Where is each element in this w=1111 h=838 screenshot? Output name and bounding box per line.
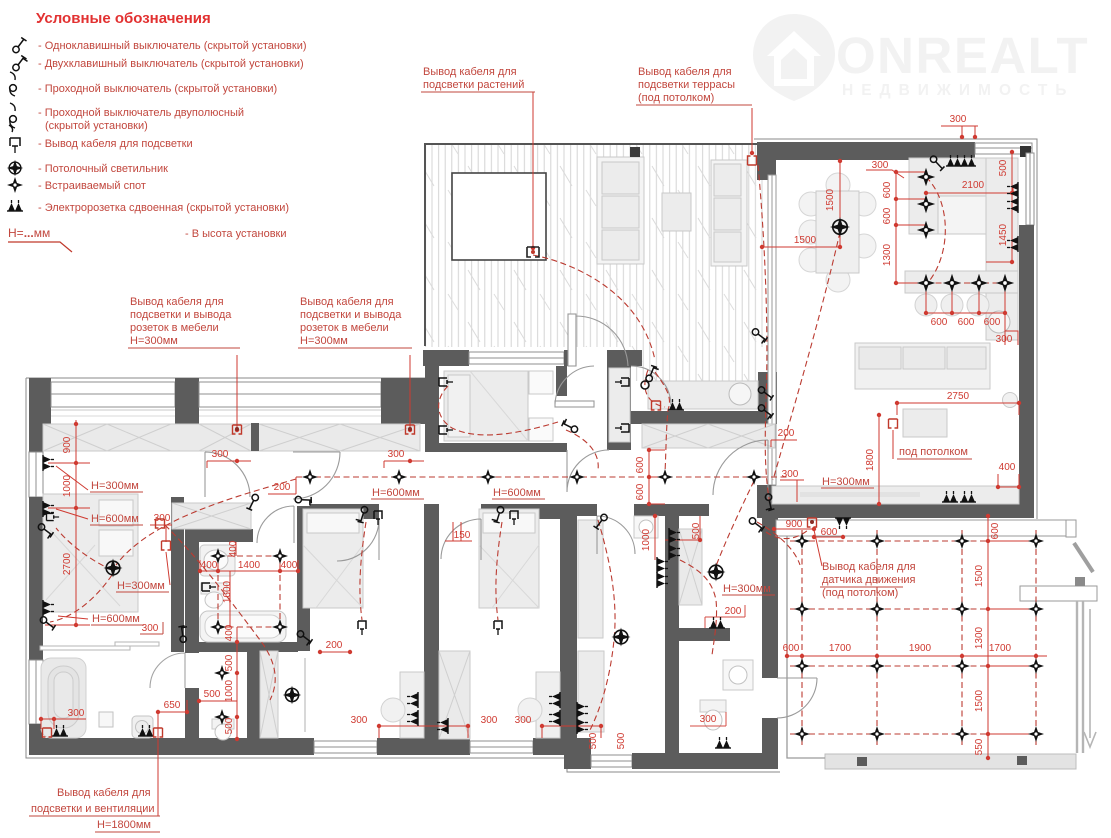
svg-text:(под потолком): (под потолком) [822,587,898,599]
svg-text:1500: 1500 [825,188,836,211]
svg-text:- Проходной выключатель двупол: - Проходной выключатель двуполюсный [38,107,244,119]
svg-text:под потолком: под потолком [899,446,968,458]
svg-text:1700: 1700 [829,643,852,654]
svg-text:300: 300 [700,714,717,725]
svg-text:300: 300 [68,708,85,719]
svg-text:200: 200 [274,482,291,493]
svg-text:900: 900 [786,519,803,530]
svg-text:400: 400 [999,462,1016,473]
svg-text:1500: 1500 [974,689,985,712]
svg-text:Вывод кабеля для: Вывод кабеля для [822,561,916,573]
svg-text:500: 500 [224,717,235,734]
svg-text:1400: 1400 [238,560,261,571]
svg-text:Условные обозначения: Условные обозначения [36,10,211,27]
svg-text:Н=600мм: Н=600мм [372,487,420,499]
svg-text:НЕДВИЖИМОСТЬ: НЕДВИЖИМОСТЬ [842,82,1074,99]
svg-text:200: 200 [778,428,795,439]
svg-text:Н=600мм: Н=600мм [91,513,139,525]
svg-text:2700: 2700 [62,552,73,575]
svg-text:600: 600 [635,456,646,473]
svg-text:1600: 1600 [222,580,233,603]
svg-text:600: 600 [635,483,646,500]
svg-text:500: 500 [204,689,221,700]
svg-text:- Встраиваемый спот: - Встраиваемый спот [38,180,146,192]
svg-text:600: 600 [821,527,838,538]
svg-text:- Потолочный светильник: - Потолочный светильник [38,163,168,175]
svg-text:300: 300 [142,623,159,634]
svg-text:Н=600мм: Н=600мм [92,613,140,625]
svg-text:1000: 1000 [62,474,73,497]
svg-text:(скрытой установки): (скрытой установки) [45,120,148,132]
svg-text:1700: 1700 [989,643,1012,654]
svg-text:Н=300мм: Н=300мм [300,335,348,347]
svg-text:- Двухклавишный выключатель (с: - Двухклавишный выключатель (скрытой уст… [38,58,304,70]
svg-text:200: 200 [326,640,343,651]
svg-text:1500: 1500 [974,564,985,587]
svg-text:Вывод кабеля для: Вывод кабеля для [130,296,224,308]
svg-text:600: 600 [958,317,975,328]
svg-text:500: 500 [998,159,1009,176]
svg-text:Н=300мм: Н=300мм [822,476,870,488]
svg-text:Н=300мм: Н=300мм [91,480,139,492]
svg-text:500: 500 [224,654,235,671]
svg-text:600: 600 [882,181,893,198]
svg-text:300: 300 [515,715,532,726]
svg-text:Вывод кабеля для: Вывод кабеля для [57,787,151,799]
svg-text:400: 400 [228,540,239,557]
svg-text:600: 600 [984,317,1001,328]
svg-text:Вывод кабеля для: Вывод кабеля для [300,296,394,308]
svg-text:600: 600 [931,317,948,328]
svg-text:розеток в мебели: розеток в мебели [130,322,219,334]
svg-text:Н=300мм: Н=300мм [117,580,165,592]
svg-text:1450: 1450 [998,223,1009,246]
svg-text:600: 600 [783,643,800,654]
svg-text:Н=300мм: Н=300мм [130,335,178,347]
svg-text:ONREALT: ONREALT [836,27,1089,84]
svg-text:- В ысота установки: - В ысота установки [185,228,287,240]
svg-text:Вывод кабеля для: Вывод кабеля для [638,66,732,78]
svg-text:150: 150 [454,530,471,541]
svg-text:300: 300 [212,449,229,460]
svg-text:1800: 1800 [865,448,876,471]
svg-text:600: 600 [882,207,893,224]
svg-text:400: 400 [201,560,218,571]
svg-text:1000: 1000 [224,679,235,702]
svg-text:подсветки и вывода: подсветки и вывода [300,309,402,321]
svg-text:400: 400 [224,624,235,641]
svg-text:2100: 2100 [962,180,985,191]
svg-text:1000: 1000 [641,528,652,551]
svg-text:300: 300 [950,114,967,125]
svg-text:подсветки террасы: подсветки террасы [638,79,735,91]
svg-text:розеток в мебели: розеток в мебели [300,322,389,334]
svg-text:Вывод кабеля для: Вывод кабеля для [423,66,517,78]
svg-text:H=...мм: H=...мм [8,226,50,240]
svg-text:550: 550 [974,738,985,755]
svg-text:500: 500 [588,732,599,749]
svg-text:подсветки и вывода: подсветки и вывода [130,309,232,321]
svg-text:2750: 2750 [947,391,970,402]
svg-text:1900: 1900 [909,643,932,654]
svg-text:датчика движения: датчика движения [822,574,916,586]
svg-text:подсветки и вентиляции: подсветки и вентиляции [31,803,155,815]
svg-text:300: 300 [782,469,799,480]
svg-text:600: 600 [990,522,1001,539]
svg-text:- Вывод кабеля для подсветки: - Вывод кабеля для подсветки [38,138,193,150]
svg-text:300: 300 [388,449,405,460]
svg-text:400: 400 [281,560,298,571]
svg-text:300: 300 [481,715,498,726]
svg-text:200: 200 [725,606,742,617]
svg-text:650: 650 [164,700,181,711]
svg-text:(под потолком): (под потолком) [638,92,714,104]
svg-text:- Проходной выключатель (скрыт: - Проходной выключатель (скрытой установ… [38,83,277,95]
svg-text:1300: 1300 [882,243,893,266]
svg-text:300: 300 [872,160,889,171]
svg-text:900: 900 [62,436,73,453]
svg-text:300: 300 [351,715,368,726]
svg-text:Н=600мм: Н=600мм [493,487,541,499]
svg-text:1500: 1500 [794,235,817,246]
svg-text:- Одноклавишный выключатель (с: - Одноклавишный выключатель (скрытой уст… [38,40,307,52]
svg-text:- Электророзетка сдвоенная (ск: - Электророзетка сдвоенная (скрытой уста… [38,202,289,214]
svg-text:500: 500 [691,522,702,539]
svg-text:1300: 1300 [974,626,985,649]
svg-text:500: 500 [616,732,627,749]
svg-text:подсветки растений: подсветки растений [423,79,524,91]
svg-text:Н=1800мм: Н=1800мм [97,819,151,831]
svg-text:Н=300мм: Н=300мм [723,583,771,595]
